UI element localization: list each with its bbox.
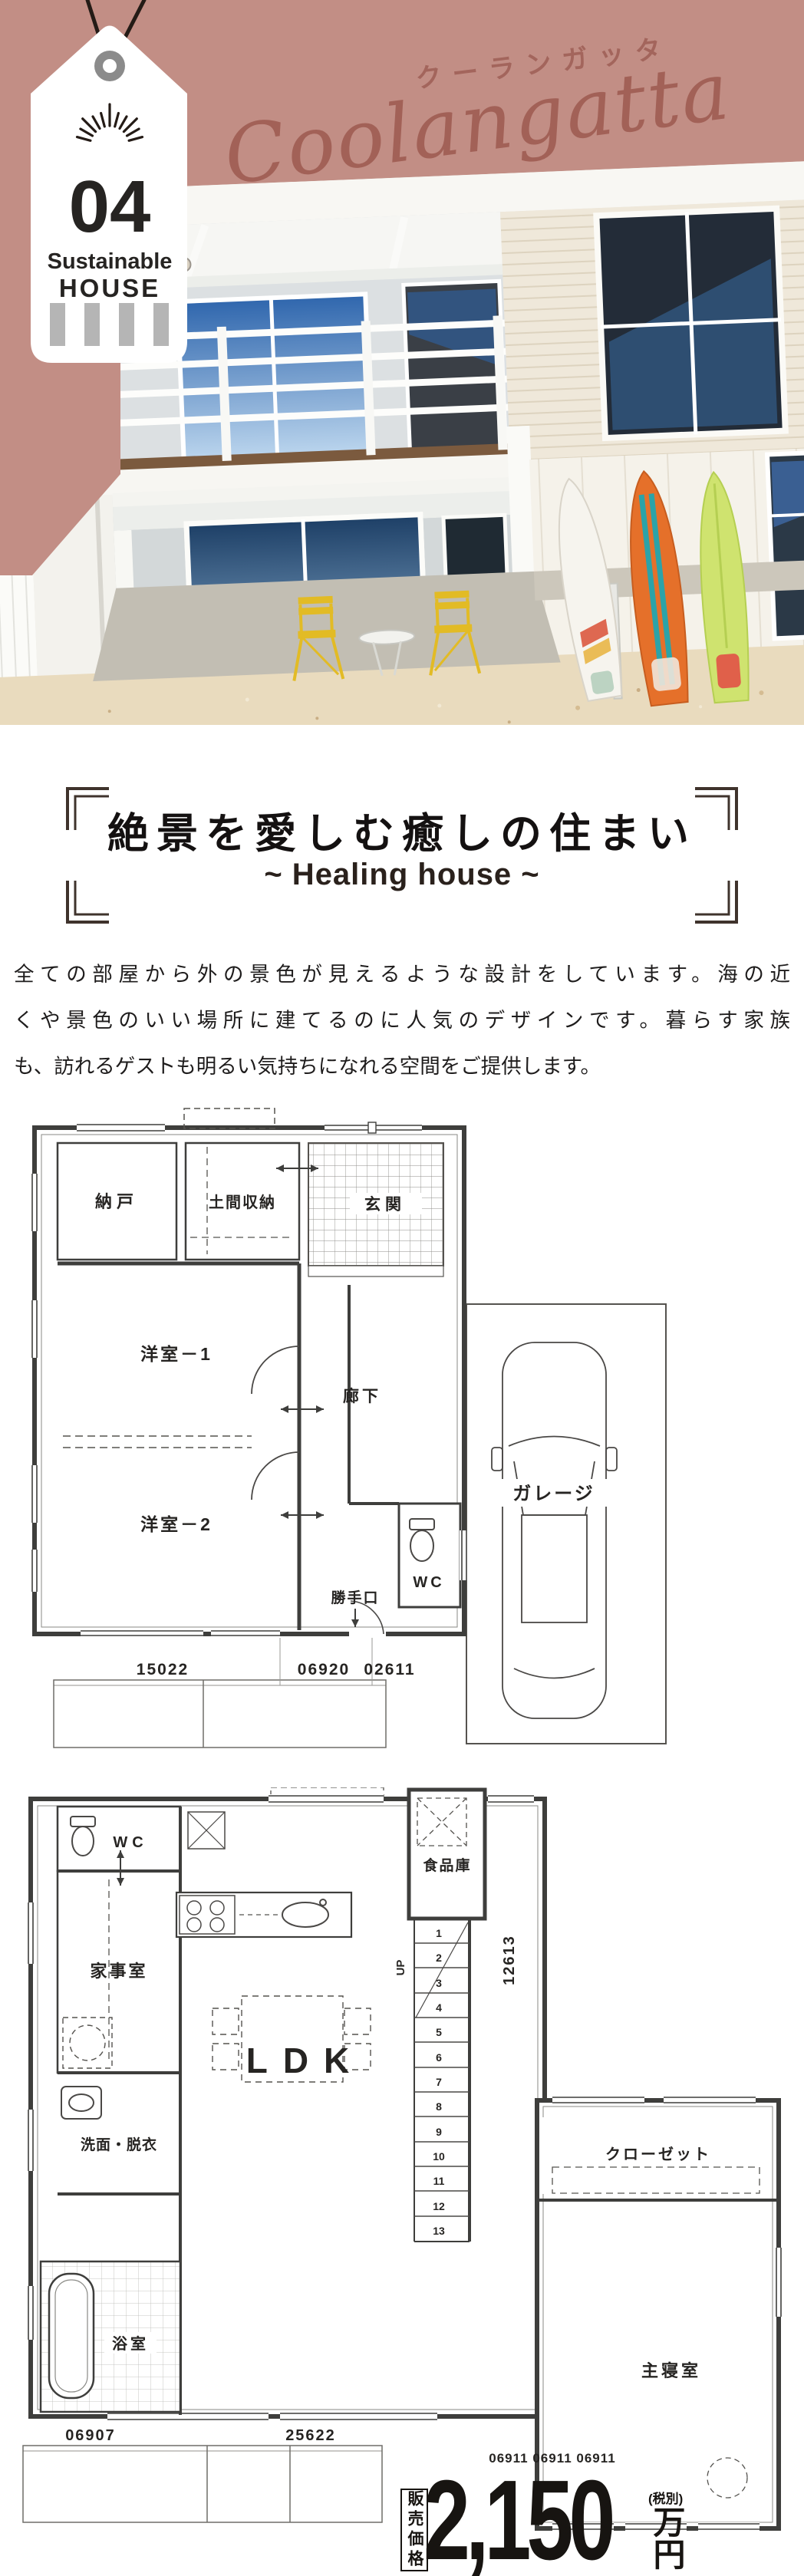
room-label-rouka: 廊下 bbox=[343, 1387, 381, 1405]
room-label-bath: 浴室 bbox=[112, 2334, 149, 2353]
room-label-yoshitsu1: 洋室－1 bbox=[140, 1344, 213, 1364]
svg-text:11: 11 bbox=[433, 2175, 445, 2187]
tag-number: 04 bbox=[69, 166, 151, 248]
room-label-ldk: LDK bbox=[246, 2041, 365, 2080]
description-line: 全ての部屋から外の景色が見えるような設計をしています。海の近 bbox=[14, 951, 790, 997]
room-label-genkan: 玄関 bbox=[364, 1195, 406, 1214]
dimension-label: 06920 bbox=[298, 1661, 350, 1678]
svg-text:7: 7 bbox=[436, 2076, 442, 2088]
svg-text:3: 3 bbox=[436, 1977, 442, 1989]
svg-text:5: 5 bbox=[436, 2026, 442, 2038]
description-paragraph: 全ての部屋から外の景色が見えるような設計をしています。海の近 くや景色のいい場所… bbox=[14, 951, 790, 1089]
svg-text:6: 6 bbox=[436, 2051, 442, 2064]
room-label-closet: クローゼット bbox=[605, 2145, 711, 2163]
floorplan-2f: WC 家事室 洗面・脱衣 浴室 食品庫 LDK クローゼット 主寝室 UP 1 … bbox=[15, 1787, 790, 2539]
tag-label-line2: HOUSE bbox=[59, 274, 160, 302]
room-label-nando: 納戸 bbox=[95, 1192, 138, 1211]
stairs-up-label: UP bbox=[394, 1960, 407, 1976]
room-label-garage: ガレージ bbox=[512, 1484, 595, 1504]
description-line: くや景色のいい場所に建てるのに人気のデザインです。暮らす家族 bbox=[14, 997, 790, 1043]
dimension-label: 02611 bbox=[364, 1661, 415, 1678]
room-label-senmen: 洗面・脱衣 bbox=[81, 2136, 157, 2153]
room-label-doma: 土間収納 bbox=[209, 1193, 276, 1211]
room-label-katteguchi: 勝手口 bbox=[331, 1589, 379, 1606]
description-line: も、訪れるゲストも明るい気持ちになれる空間をご提供します。 bbox=[14, 1043, 790, 1089]
price-unit: 万円 bbox=[650, 2505, 684, 2570]
room-label-wc: WC bbox=[413, 1574, 444, 1591]
svg-text:4: 4 bbox=[436, 2001, 442, 2014]
bathtub-icon bbox=[49, 2274, 94, 2398]
svg-text:1: 1 bbox=[436, 1927, 442, 1939]
deck-outline bbox=[23, 2446, 382, 2522]
dimension-label: 12613 bbox=[501, 1935, 518, 1985]
room-label-shinshitsu: 主寝室 bbox=[641, 2361, 701, 2380]
svg-text:9: 9 bbox=[436, 2126, 442, 2138]
room-label-wc: WC bbox=[113, 1834, 147, 1851]
room-label-pantry: 食品庫 bbox=[423, 1856, 471, 1874]
dimension-label: 06907 bbox=[65, 2427, 116, 2444]
page-title: 絶景を愛しむ癒しの住まい bbox=[0, 799, 804, 860]
dimension-label: 25622 bbox=[285, 2427, 336, 2444]
svg-text:2: 2 bbox=[436, 1952, 442, 1964]
svg-text:12: 12 bbox=[433, 2200, 445, 2212]
hero-section: 04 Sustainable HOUSE クーランガッタ Coolangatta bbox=[0, 0, 804, 725]
room-label-yoshitsu2: 洋室－2 bbox=[140, 1514, 213, 1534]
svg-text:13: 13 bbox=[433, 2225, 445, 2237]
svg-text:8: 8 bbox=[436, 2100, 442, 2113]
price-amount: 2,150 bbox=[423, 2475, 611, 2567]
price-tax-note: (税別) bbox=[648, 2488, 683, 2507]
tag-label-line1: Sustainable bbox=[48, 249, 173, 274]
svg-text:10: 10 bbox=[433, 2150, 445, 2163]
room-label-kajishitsu: 家事室 bbox=[90, 1962, 147, 1981]
deck-outline bbox=[54, 1680, 386, 1748]
brochure-page: 04 Sustainable HOUSE クーランガッタ Coolangatta… bbox=[0, 0, 804, 2576]
page-subtitle: ~ Healing house ~ bbox=[0, 858, 804, 892]
tag-badge: 04 Sustainable HOUSE bbox=[28, 0, 192, 372]
dimension-label: 15022 bbox=[137, 1661, 189, 1678]
floorplan-1f: ガレージ bbox=[23, 1101, 783, 1757]
